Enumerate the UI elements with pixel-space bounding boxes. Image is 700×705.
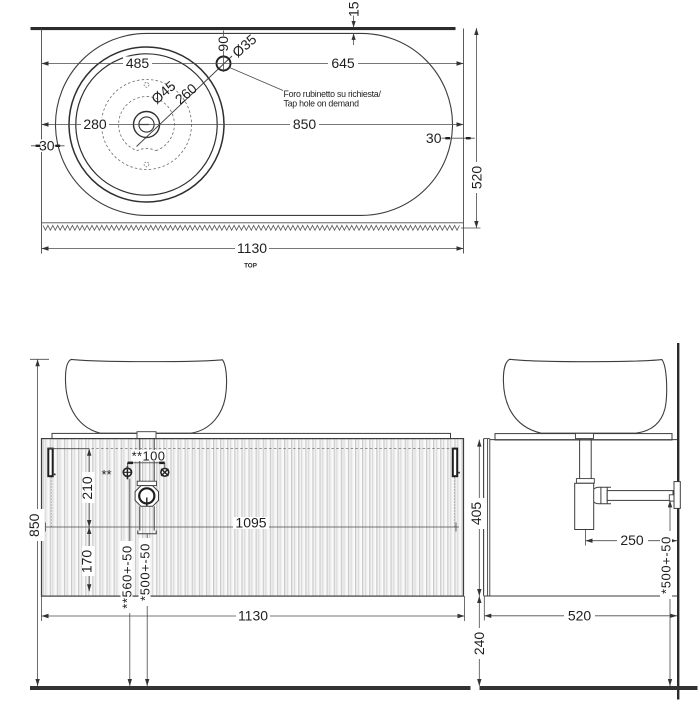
svg-text:**560+-50: **560+-50 <box>119 545 134 609</box>
svg-text:250: 250 <box>620 532 644 548</box>
svg-text:170: 170 <box>78 550 94 574</box>
svg-text:*500+-50: *500+-50 <box>137 543 152 601</box>
svg-text:405: 405 <box>468 502 484 526</box>
svg-text:240: 240 <box>471 632 487 656</box>
svg-text:1130: 1130 <box>238 608 268 624</box>
svg-text:30: 30 <box>426 130 442 146</box>
svg-text:15: 15 <box>346 1 362 17</box>
svg-text:280: 280 <box>83 116 107 132</box>
svg-text:*500+-50: *500+-50 <box>659 536 674 594</box>
svg-text:850: 850 <box>293 116 317 132</box>
svg-text:1130: 1130 <box>237 240 267 256</box>
svg-text:645: 645 <box>331 55 355 71</box>
svg-text:485: 485 <box>126 55 150 71</box>
svg-text:260: 260 <box>172 80 200 108</box>
svg-text:TOP: TOP <box>244 263 257 270</box>
svg-text:520: 520 <box>568 608 592 624</box>
svg-text:**100: **100 <box>132 448 166 463</box>
svg-text:30: 30 <box>39 138 55 154</box>
svg-text:210: 210 <box>79 476 95 500</box>
svg-text:520: 520 <box>469 166 485 190</box>
svg-text:Ø35: Ø35 <box>229 31 260 61</box>
svg-text:Tap hole on demand: Tap hole on demand <box>284 98 360 108</box>
svg-text:1095: 1095 <box>235 515 266 531</box>
svg-text:850: 850 <box>26 513 42 537</box>
svg-text:**: ** <box>101 467 111 482</box>
